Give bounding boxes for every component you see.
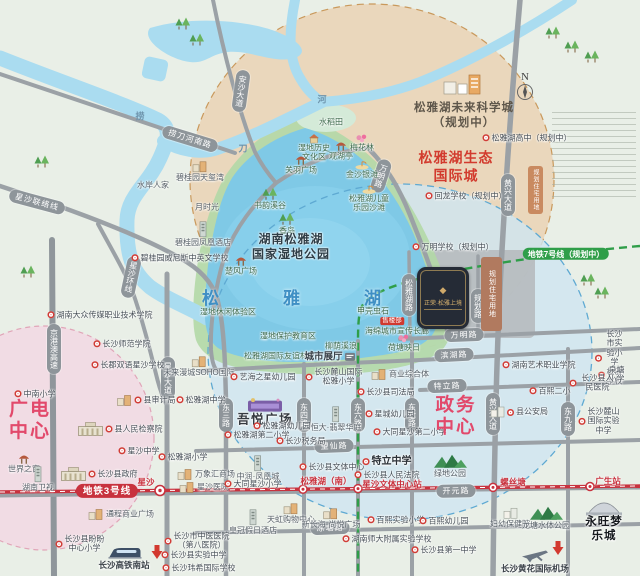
road-pill: 万明路 — [369, 158, 393, 195]
poi-text: 碧桂园威尼斯中英文学校 — [141, 253, 229, 262]
train-icon — [107, 546, 141, 560]
map-label: 世界之窗 — [8, 454, 40, 473]
building-icon — [117, 394, 133, 407]
poi-text: 关羽广场 — [285, 165, 317, 174]
disclaimer-text-block — [552, 112, 636, 198]
school-marker-icon — [89, 471, 96, 478]
compass-north-label: N — [515, 72, 535, 83]
school-marker-icon — [306, 374, 313, 381]
poi-text: 海绵城市宣传长廊 — [365, 326, 429, 335]
poi-text: 松雅湖儿童 乐园沙滩 — [349, 194, 389, 213]
map-label: 泉塘小学 — [598, 366, 626, 385]
poi-text: 荷塘映日 — [388, 343, 420, 352]
road-pill: 黄兴大道 — [486, 393, 500, 435]
school-marker-icon — [483, 135, 490, 142]
poi-text: 星沙医院 — [197, 482, 229, 491]
poi-text: 碧桂园天玺湾 — [176, 173, 224, 182]
building-icon — [191, 355, 207, 368]
tree-icon — [20, 266, 36, 279]
school-marker-icon — [48, 312, 55, 319]
poi-text: 长沙县政府 — [98, 469, 138, 478]
map-label: 湖南卫视 — [22, 466, 54, 492]
school-marker-icon — [277, 438, 284, 445]
poi-text: 特立中学 — [372, 456, 412, 468]
school-marker-icon — [366, 411, 373, 418]
poi-text: 城市展厅 — [304, 351, 342, 362]
building-icon — [88, 508, 104, 521]
map-label: 地铁3号线 — [76, 484, 138, 498]
school-marker-icon — [231, 374, 238, 381]
school-marker-icon — [300, 464, 307, 471]
hut-icon — [308, 134, 320, 144]
school-marker-icon — [94, 341, 101, 348]
poi-text: 万明学校（规划中） — [422, 242, 494, 251]
poi-text: 长沙县人民医院 — [579, 374, 617, 393]
map-label: 长沙县实验中学 — [162, 550, 227, 559]
school-marker-icon — [163, 565, 170, 572]
road-pill: 星沙环线 — [120, 255, 142, 299]
location-map: 捞刀河水稻田湿地历史 文化区观湖亭梅花林关羽广场金沙银滩松雅湖儿童 乐园沙滩书韵… — [0, 0, 640, 576]
map-label: 中润·凤凰城 — [237, 455, 280, 481]
map-label: 湿地历史 文化区 — [298, 134, 330, 163]
map-label: 楚风广场 — [225, 256, 257, 275]
tree-icon — [580, 274, 596, 287]
tree-icon — [189, 34, 205, 47]
school-marker-icon — [15, 391, 22, 398]
mall-icon — [247, 397, 283, 413]
map-label: 绿地公园 — [432, 454, 468, 478]
school-marker-icon — [225, 481, 232, 488]
poi-text: 永旺梦乐城 — [584, 516, 624, 543]
map-label: 百熙实验小学 — [368, 515, 425, 524]
poi-text: 长沙县盼盼 中心小学 — [65, 535, 105, 554]
metro-station-label: 广生站 — [595, 475, 621, 487]
school-marker-icon — [225, 432, 232, 439]
building-icon — [192, 160, 208, 173]
poi-text: 长沙麓山国际 松雅小学 — [315, 368, 363, 387]
tree-icon — [175, 18, 191, 31]
poi-text: 中南小学 — [24, 389, 56, 398]
map-label: 长沙高铁南站 — [98, 546, 149, 570]
map-label — [442, 72, 482, 98]
map-label: 星沙中学 — [119, 446, 160, 455]
beach-icon — [355, 161, 369, 170]
map-label: 长沙市实验小学 松雅学校 — [595, 330, 625, 387]
pavilion-icon — [18, 454, 30, 464]
road-pill: 万明路 — [444, 328, 483, 342]
poi-text: 地铁7号线（规划中） — [523, 248, 609, 260]
trees-icon — [279, 213, 295, 226]
map-label: 水岸人家 — [137, 180, 169, 189]
building-icon — [177, 468, 193, 481]
map-label: 售楼部 — [380, 317, 404, 325]
building-tall-icon — [253, 455, 263, 472]
map-label: 长沙麓山国际 松雅小学 — [306, 368, 363, 387]
poi-text: 吾悦广场 — [237, 413, 293, 428]
poi-text: 中润·凤凰城 — [237, 472, 280, 481]
map-label — [552, 540, 564, 556]
poi-text: 商业综合体 — [389, 369, 429, 378]
compass-icon — [516, 83, 534, 101]
gov-icon — [61, 467, 87, 482]
map-label: 长沙玮希国际学校 — [163, 563, 236, 572]
poi-text: 泉塘小学 — [607, 366, 626, 385]
poi-text: 长沙高铁南站 — [98, 560, 149, 570]
poi-text: 县公安局 — [516, 407, 548, 416]
school-marker-icon — [420, 518, 427, 525]
poi-text: 长沙玮希国际学校 — [172, 563, 236, 572]
poi-text: 长沙县实验中学 — [171, 550, 227, 559]
poi-text: 水岸人家 — [137, 180, 169, 189]
poi-text: 湖南卫视 — [22, 483, 54, 492]
school-marker-icon — [570, 380, 577, 387]
map-label: 刀 — [238, 144, 247, 155]
poi-text: 妇幼保健院 — [490, 519, 530, 528]
poi-text: 万象汇商场 — [195, 469, 235, 478]
school-marker-icon — [159, 454, 166, 461]
road-pill: 东三路 — [219, 398, 233, 432]
poi-text: 百熙幼儿园 — [429, 516, 469, 525]
poi-text: 湖南师大附属实验学校 — [352, 534, 432, 543]
map-label: 百熙二小 — [530, 386, 571, 395]
pavilion-icon — [335, 141, 347, 151]
planned-residential-label: 规划住宅用地 — [531, 169, 540, 211]
tree-icon — [594, 287, 610, 300]
school-marker-icon — [368, 517, 375, 524]
school-marker-icon — [413, 244, 420, 251]
poi-text: 河 — [317, 95, 326, 106]
poi-text: 湖南艺术职业学院 — [512, 360, 576, 369]
map-label: 湖南师大附属实验学校 — [343, 534, 432, 543]
pavilion-icon — [295, 155, 307, 165]
map-label: 碧桂园凤凰酒店 — [175, 221, 231, 247]
plane-icon — [520, 548, 550, 563]
compass: N — [515, 72, 535, 106]
red-arrow-down-icon — [151, 544, 163, 560]
building-icon — [179, 481, 195, 494]
building-tall-icon — [33, 466, 43, 483]
poi-text: 长沙市实验小学 松雅学校 — [604, 330, 625, 387]
building-icon — [323, 507, 339, 520]
map-label: 长沙县司法局 — [358, 387, 415, 396]
map-label: 松雅湖小学 — [159, 452, 208, 461]
building-white-icon — [503, 507, 518, 519]
map-label: 特立中学 — [363, 456, 412, 468]
map-label: 长沙黄花国际机场 — [501, 548, 569, 573]
mountains-icon — [432, 454, 468, 469]
planned-residential-block: 规划住宅用地 — [481, 257, 502, 331]
trees-icon — [262, 188, 278, 201]
map-label: 星沙医院 — [179, 481, 229, 494]
poi-text: 梅花林 — [350, 143, 374, 152]
school-marker-icon — [595, 355, 602, 362]
school-marker-icon — [598, 372, 605, 379]
poi-text: 百熙实验小学 — [377, 515, 425, 524]
poi-text: 长郡双语星沙学校 — [101, 360, 165, 369]
school-marker-icon — [56, 541, 63, 548]
poi-text: 香岛 — [279, 226, 295, 235]
school-marker-icon — [412, 547, 419, 554]
school-marker-icon — [363, 458, 370, 465]
gov-icon — [78, 422, 104, 437]
road-pill: 京港澳高速 — [47, 324, 61, 374]
map-label: 海绵城市宣传长廊 — [365, 326, 429, 335]
building-cluster-icon — [442, 72, 482, 98]
map-label: 梅花林 — [350, 134, 374, 152]
map-label: 永旺梦乐城 — [584, 499, 624, 543]
map-label: 长沙县人民医院 — [570, 374, 617, 393]
map-label: 回龙学校（规划中） — [426, 191, 507, 200]
school-marker-icon — [119, 448, 126, 455]
poi-text: 皇冠假日酒店 — [229, 526, 277, 535]
map-label: 皇冠假日酒店 — [229, 509, 277, 535]
school-marker-icon — [503, 362, 510, 369]
school-marker-icon — [358, 389, 365, 396]
poi-text: 松雅湖第二小学 — [234, 430, 290, 439]
road-pill: 东九路 — [561, 402, 575, 436]
tree-icon — [584, 51, 600, 64]
poi-text: 长沙市中医医院 （第八医院） — [174, 532, 230, 551]
building-icon — [371, 368, 387, 381]
poi-text: 楚风广场 — [225, 266, 257, 275]
school-marker-icon — [177, 397, 184, 404]
poi-text: 刀 — [238, 144, 247, 155]
road-pill: 特立路 — [427, 379, 466, 393]
map-label: 城市展厅 — [304, 351, 355, 362]
school-marker-icon — [426, 193, 433, 200]
road-pill: 东四路 — [297, 398, 311, 432]
road-pill: 安沙大道 — [231, 69, 251, 113]
poi-text: 世界之窗 — [8, 464, 40, 473]
poi-text: 回龙学校（规划中） — [435, 191, 507, 200]
map-label: 捞 — [135, 112, 144, 123]
map-label: 中南小学 — [15, 389, 56, 398]
school-marker-icon — [92, 362, 99, 369]
school-marker-icon — [374, 429, 381, 436]
poi-text: 湖南大众传媒职业技术学院 — [57, 310, 153, 319]
map-label: 长郡双语星沙学校 — [92, 360, 165, 369]
red-arrow-down-icon — [552, 540, 564, 556]
lake-name: 松雅湖 — [202, 284, 445, 309]
project-gold-frame — [420, 270, 466, 326]
poi-text: 绿地公园 — [434, 469, 466, 478]
pavilion-icon — [235, 256, 247, 266]
poi-text: 湿地历史 文化区 — [298, 144, 330, 163]
poi-text: 星沙中学 — [128, 446, 160, 455]
map-label: 大同星沙小学 — [225, 479, 282, 488]
metro-station-label: 螺丝塘 — [500, 476, 526, 488]
school-marker-icon — [343, 536, 350, 543]
building-tall-icon — [198, 221, 208, 238]
poi-text: 售楼部 — [380, 317, 404, 325]
planned-residential-block: 规划住宅用地 — [528, 166, 543, 214]
mountains-icon — [528, 506, 564, 521]
road-pill: 捞刀河南路 — [161, 124, 219, 153]
map-label: 商业综合体 — [371, 368, 429, 381]
poi-text: 天虹购物中心 — [267, 515, 315, 524]
map-label: 柳荫溪浪 — [325, 341, 357, 350]
map-label: 观湖亭 — [329, 141, 353, 160]
map-label: 月时光 — [195, 202, 219, 211]
poi-text: 长沙麓山国际实验中学 — [588, 407, 620, 435]
map-label: 吾悦广场 — [237, 397, 293, 428]
map-label: 通程商业广场 — [88, 508, 154, 521]
map-label: 长沙市中医医院 （第八医院） — [165, 532, 230, 551]
poi-text: 水稻田 — [319, 117, 343, 126]
poi-text: 月时光 — [195, 202, 219, 211]
road-pill: 滨湖路 — [434, 347, 474, 362]
map-label: 书韵溪谷 — [254, 188, 286, 210]
poi-text: 长沙县司法局 — [367, 387, 415, 396]
poi-text: 松雅湖小学 — [168, 452, 208, 461]
tree-icon — [34, 156, 50, 169]
school-marker-icon — [507, 409, 514, 416]
poi-text: 百熙二小 — [539, 386, 571, 395]
map-label: 长沙麓山国际实验中学 — [579, 407, 620, 435]
tree-icon — [545, 27, 561, 40]
road-pill: 星沙大道 — [161, 357, 175, 399]
map-label: 长沙县文体中心 — [300, 462, 365, 471]
map-label: 万象汇商场 — [177, 468, 235, 481]
poi-text: 湿地保护教育区 — [260, 331, 316, 340]
map-label: 县人民检察院 — [78, 422, 163, 437]
map-label — [151, 544, 163, 560]
map-label: 碧桂园威尼斯中英文学校 — [132, 253, 229, 262]
poi-text: 书韵溪谷 — [254, 201, 286, 210]
poi-text: 长沙县第一中学 — [421, 545, 477, 554]
map-label: 湿地保护教育区 — [260, 331, 316, 340]
metro-station-label: 星沙文体中心站 — [362, 478, 422, 490]
road-pill: 凉塘路 — [310, 521, 349, 535]
building-tall-icon — [331, 406, 341, 423]
school-marker-icon — [530, 388, 537, 395]
school-marker-icon — [355, 472, 362, 479]
school-marker-icon — [254, 423, 261, 430]
building-icon — [283, 502, 299, 515]
road-pill: 星沙联络线 — [8, 188, 66, 215]
poi-text: 通程商业广场 — [106, 509, 154, 518]
metro-station-label: 松雅湖（南） — [300, 475, 351, 487]
sign-icon — [345, 352, 356, 361]
map-label: 妇幼保健院 — [490, 507, 530, 528]
poi-text: 长沙师范学院 — [103, 339, 151, 348]
map-label: 关羽广场 — [285, 155, 317, 174]
map-label: 天虹购物中心 — [267, 502, 315, 524]
school-marker-icon — [162, 552, 169, 559]
map-label: 长沙县第一中学 — [412, 545, 477, 554]
poi-text: 龙塘水体公园 — [522, 521, 570, 530]
poi-text: 松雅湖国际友谊林 — [244, 351, 308, 360]
poi-text: 捞 — [135, 112, 144, 123]
poi-text: 大同星沙小学 — [234, 479, 282, 488]
project-site-block: ◆ 正荣·松雅上境 — [417, 267, 469, 329]
tree-icon — [564, 41, 580, 54]
map-label: 松雅湖第二小学 — [225, 430, 290, 439]
map-label: 百熙幼儿园 — [420, 516, 469, 525]
planned-residential-label: 规划住宅用地 — [487, 270, 497, 318]
poi-text: 观湖亭 — [329, 151, 353, 160]
poi-text: 长沙黄花国际机场 — [501, 563, 569, 573]
building-tall-icon — [248, 509, 258, 526]
map-label: 河 — [317, 95, 326, 106]
flower-icon — [398, 334, 410, 343]
flower-icon — [356, 134, 368, 143]
map-label: 长沙县盼盼 中心小学 — [56, 535, 105, 554]
map-label: 长沙师范学院 — [94, 339, 151, 348]
road-pill: 东六路 — [351, 398, 365, 432]
map-label: 地铁7号线（规划中） — [523, 248, 609, 260]
school-marker-icon — [165, 538, 172, 545]
poi-text: 柳荫溪浪 — [325, 341, 357, 350]
school-marker-icon — [106, 426, 113, 433]
map-label: 松雅湖国际友谊林 — [244, 351, 308, 360]
road-pill: 东七路 — [405, 398, 419, 432]
road-pill: 开元路 — [436, 484, 475, 498]
poi-text: 碧桂园凤凰酒店 — [175, 238, 231, 247]
map-label: 香岛 — [279, 213, 295, 235]
road-pill: 望仙路 — [314, 439, 353, 453]
poi-text: 长沙县文体中心 — [309, 462, 365, 471]
road-pill: 黄兴大道 — [501, 174, 515, 216]
map-label: 荷塘映日 — [388, 334, 420, 352]
map-label: 湖南艺术职业学院 — [503, 360, 576, 369]
map-label: 艺海之星幼儿园 — [231, 372, 296, 381]
school-marker-icon — [135, 397, 142, 404]
map-label: 水稻田 — [319, 117, 343, 126]
map-label: 长沙县政府 — [61, 467, 138, 482]
poi-text: 艺海之星幼儿园 — [240, 372, 296, 381]
metro-station-label: 星沙 — [137, 476, 154, 488]
map-label: 万明学校（规划中） — [413, 242, 494, 251]
map-label: 湖南大众传媒职业技术学院 — [48, 310, 153, 319]
school-marker-icon — [579, 418, 586, 425]
poi-text: 县人民检察院 — [115, 424, 163, 433]
map-label: 龙塘水体公园 — [522, 506, 570, 530]
map-label: 碧桂园天玺湾 — [176, 160, 224, 182]
poi-text: 地铁3号线 — [76, 484, 138, 498]
dome-icon — [584, 499, 624, 516]
